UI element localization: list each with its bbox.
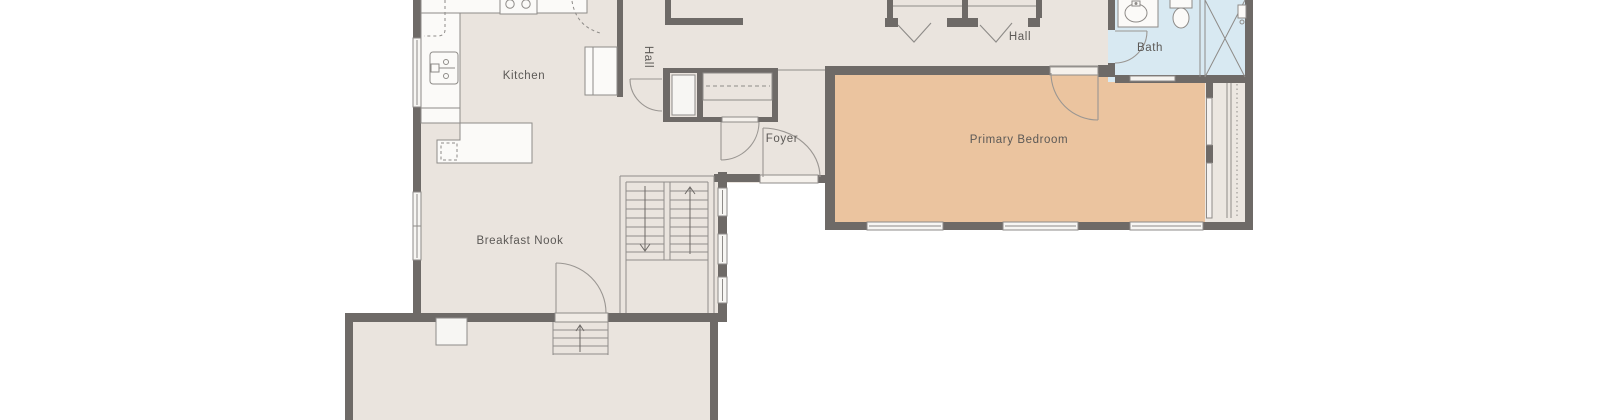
room-label-bath: Bath (1137, 42, 1163, 54)
room-label-kitchen: Kitchen (503, 70, 546, 82)
bath-wall-inset (1130, 76, 1175, 81)
window-breakfast-left (413, 192, 421, 260)
lower-room-floor (345, 313, 718, 420)
kitchen-sink-icon (430, 52, 458, 84)
window-bedroom-1 (867, 222, 943, 230)
closet-door-opening (722, 117, 758, 122)
room-label-hall-corridor: Hall (642, 46, 654, 68)
room-label-primary-bedroom: Primary Bedroom (970, 134, 1068, 146)
window-stair-1 (718, 188, 727, 216)
kitchen-peninsula-counter (585, 47, 617, 95)
window-kitchen-left (413, 38, 421, 107)
fireplace-box (436, 318, 467, 345)
room-label-foyer: Foyer (766, 133, 798, 145)
stove-icon (500, 0, 537, 14)
primary-bedroom-floor (828, 66, 1213, 230)
window-stair-2 (718, 234, 727, 264)
floor-plan: Kitchen Hall Hall Bath Foyer Primary Bed… (0, 0, 1600, 420)
floor-plan-page: Kitchen Hall Hall Bath Foyer Primary Bed… (0, 0, 1600, 420)
window-bedroom-3 (1130, 222, 1203, 230)
room-label-hall-upper: Hall (1009, 31, 1031, 43)
basement-door-opening (555, 313, 608, 322)
closet-cabinet (672, 75, 695, 115)
window-bedroom-2 (1003, 222, 1078, 230)
room-label-breakfast-nook: Breakfast Nook (476, 235, 563, 247)
window-stair-3 (718, 277, 727, 303)
bath-sink-icon (1118, 0, 1158, 27)
entry-door-opening (760, 175, 818, 183)
bath-door-opening (1108, 30, 1115, 63)
